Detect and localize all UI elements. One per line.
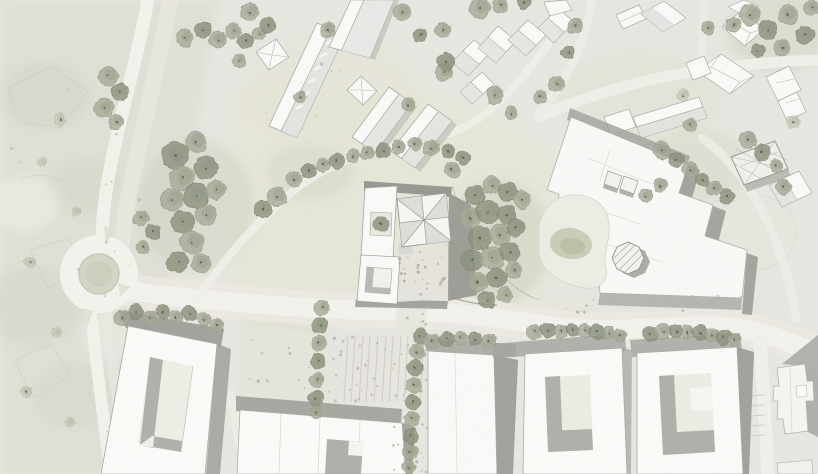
site-plan-stage [0,0,818,474]
site-plan-drawing [0,0,818,474]
plan-layers [0,0,818,474]
paper-grain-overlay [0,0,818,474]
